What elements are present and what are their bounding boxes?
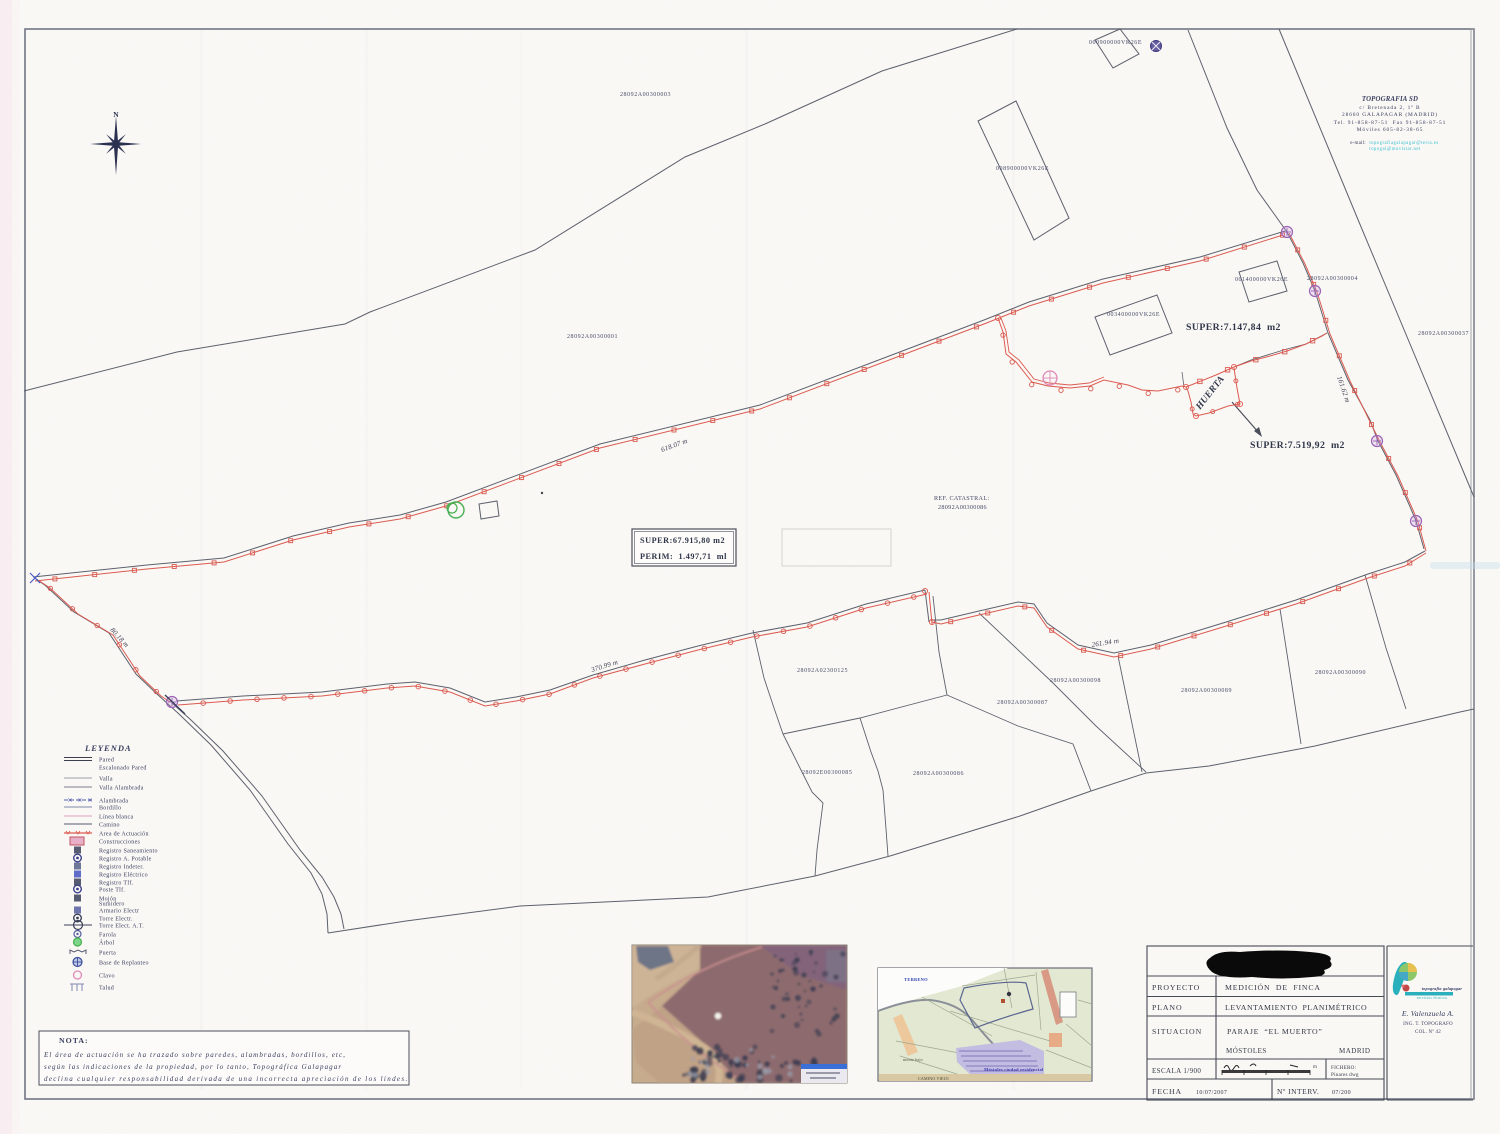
svg-text:monte bajo: monte bajo	[903, 1057, 923, 1062]
svg-text:28092A00300003: 28092A00300003	[620, 92, 671, 98]
svg-text:Móstoles ciudad residencial: Móstoles ciudad residencial	[984, 1067, 1044, 1072]
svg-text:LEVANTAMIENTO PLANIMÉTRICO: LEVANTAMIENTO PLANIMÉTRICO	[1225, 1002, 1367, 1012]
svg-text:NOTA:: NOTA:	[59, 1036, 89, 1045]
svg-text:10/07/2007: 10/07/2007	[1196, 1090, 1227, 1096]
svg-text:001400000VK26E: 001400000VK26E	[1235, 277, 1288, 283]
svg-text:SITUACION: SITUACION	[1152, 1027, 1202, 1036]
svg-text:Area de Actuación: Area de Actuación	[99, 832, 149, 838]
svg-text:Valla Alambrada: Valla Alambrada	[99, 786, 144, 792]
svg-text:28092A00300090: 28092A00300090	[1315, 670, 1366, 676]
svg-text:Torre Electr.: Torre Electr.	[99, 917, 133, 923]
svg-text:PROYECTO: PROYECTO	[1152, 983, 1200, 992]
svg-text:Registro Saneamiento: Registro Saneamiento	[99, 849, 158, 855]
svg-text:Registro Indeter.: Registro Indeter.	[99, 865, 144, 871]
svg-text:topogal@movistar.net: topogal@movistar.net	[1369, 147, 1421, 152]
svg-text:Tel. 91-858-87-51 Fax 91-858-: Tel. 91-858-87-51 Fax 91-858-87-51	[1334, 120, 1446, 126]
svg-text:declina cualquier responsabili: declina cualquier responsabilidad deriva…	[44, 1075, 409, 1083]
svg-text:Registro A. Potable: Registro A. Potable	[99, 857, 152, 863]
svg-text:Poste Tlf.: Poste Tlf.	[99, 887, 125, 894]
svg-text:008900000VK26E: 008900000VK26E	[996, 166, 1049, 172]
svg-text:28092A00300089: 28092A00300089	[1181, 688, 1232, 694]
svg-text:28092A00300087: 28092A00300087	[997, 700, 1048, 706]
svg-text:SUPER:67.915,80 m2: SUPER:67.915,80 m2	[640, 536, 725, 545]
svg-text:FECHA: FECHA	[1152, 1087, 1182, 1096]
svg-text:Móviles 605-82-38-65: Móviles 605-82-38-65	[1357, 127, 1424, 133]
svg-text:28092A00300086: 28092A00300086	[913, 771, 964, 777]
svg-text:Árbol: Árbol	[99, 939, 115, 947]
svg-text:El área de actuación se ha tra: El área de actuación se ha trazado sobre…	[43, 1051, 346, 1059]
svg-text:CAMINO VIEJO: CAMINO VIEJO	[918, 1076, 949, 1081]
svg-text:28092E00300085: 28092E00300085	[802, 770, 852, 776]
svg-text:Valla: Valla	[99, 777, 113, 783]
svg-text:ING. T. TOPOGRAFO: ING. T. TOPOGRAFO	[1403, 1022, 1453, 1027]
svg-text:m: m	[1313, 1065, 1317, 1070]
svg-text:COL. Nº 42: COL. Nº 42	[1415, 1029, 1441, 1035]
svg-text:TOPOGRAFIA SD: TOPOGRAFIA SD	[1362, 96, 1418, 103]
svg-text:Registro Eléctrico: Registro Eléctrico	[99, 873, 148, 879]
svg-text:SUPER:7.147,84 m2: SUPER:7.147,84 m2	[1186, 322, 1281, 333]
svg-text:28092A00300098: 28092A00300098	[1050, 678, 1101, 684]
svg-text:28092A02300125: 28092A02300125	[797, 668, 848, 674]
svg-text:Torre Elect. A.T.: Torre Elect. A.T.	[99, 924, 144, 930]
svg-text:28660 GALAPAGAR (MADRID): 28660 GALAPAGAR (MADRID)	[1342, 111, 1438, 118]
svg-text:Construcciones: Construcciones	[99, 840, 141, 846]
svg-text:Talud: Talud	[99, 986, 114, 992]
svg-text:07/200: 07/200	[1332, 1090, 1351, 1096]
svg-text:PERIM: 1.497,71 ml: PERIM: 1.497,71 ml	[640, 552, 727, 561]
svg-text:SUPER:7.519,92 m2: SUPER:7.519,92 m2	[1250, 440, 1345, 451]
svg-text:MADRID: MADRID	[1339, 1047, 1370, 1055]
svg-text:Bordillo: Bordillo	[99, 806, 121, 812]
svg-text:28092A00300001: 28092A00300001	[567, 334, 618, 340]
svg-text:Pinares dwg: Pinares dwg	[1331, 1072, 1359, 1078]
svg-text:Armario Electr: Armario Electr	[99, 909, 139, 915]
svg-text:Registro Tlf.: Registro Tlf.	[99, 880, 134, 887]
svg-text:Puerta: Puerta	[99, 951, 116, 957]
svg-text:Farola: Farola	[99, 933, 116, 939]
svg-text:ESCALA 1/900: ESCALA 1/900	[1152, 1067, 1201, 1075]
svg-text:Sumidero: Sumidero	[99, 902, 125, 908]
svg-text:según las indicaciones de la p: según las indicaciones de la propiedad, …	[44, 1063, 342, 1071]
svg-text:REF. CATASTRAL:: REF. CATASTRAL:	[934, 495, 989, 502]
svg-text:Línea blanca: Línea blanca	[99, 815, 133, 821]
svg-text:topografiagalapagar@terra.es: topografiagalapagar@terra.es	[1369, 141, 1438, 146]
svg-text:E. Valenzuela A.: E. Valenzuela A.	[1401, 1009, 1454, 1018]
svg-text:003400000VK26E: 003400000VK26E	[1107, 312, 1160, 318]
svg-text:Clavo: Clavo	[99, 974, 115, 980]
svg-text:Base de Replanteo: Base de Replanteo	[99, 961, 149, 967]
svg-text:28092A00300037: 28092A00300037	[1418, 331, 1469, 337]
svg-text:Camino: Camino	[99, 823, 120, 829]
svg-text:Pared: Pared	[99, 758, 114, 764]
svg-text:PLANO: PLANO	[1152, 1003, 1183, 1012]
svg-text:c/ Bretenada 2, 1º B: c/ Bretenada 2, 1º B	[1359, 105, 1420, 111]
svg-text:28092A00300004: 28092A00300004	[1307, 276, 1358, 282]
svg-text:topografia galapagar: topografia galapagar	[1422, 986, 1463, 991]
svg-text:servicios técnicos: servicios técnicos	[1417, 996, 1448, 1000]
svg-text:LEYENDA: LEYENDA	[84, 743, 132, 753]
svg-text:MEDICIÓN DE FINCA: MEDICIÓN DE FINCA	[1225, 982, 1321, 992]
svg-text:28092A00300086: 28092A00300086	[938, 504, 987, 511]
svg-text:Escalonado Pared: Escalonado Pared	[99, 766, 147, 772]
svg-text:Alambrada: Alambrada	[99, 799, 128, 805]
svg-text:e-mail:: e-mail:	[1350, 141, 1366, 146]
svg-text:MÓSTOLES: MÓSTOLES	[1226, 1047, 1267, 1055]
svg-text:000900000VK26E: 000900000VK26E	[1089, 40, 1142, 46]
svg-text:Nº INTERV.: Nº INTERV.	[1277, 1087, 1319, 1096]
svg-text:FICHERO:: FICHERO:	[1331, 1065, 1357, 1071]
svg-text:TERRENO: TERRENO	[904, 977, 928, 982]
svg-text:PARAJE “EL MUERTO”: PARAJE “EL MUERTO”	[1227, 1027, 1323, 1036]
svg-text:N: N	[113, 110, 119, 119]
